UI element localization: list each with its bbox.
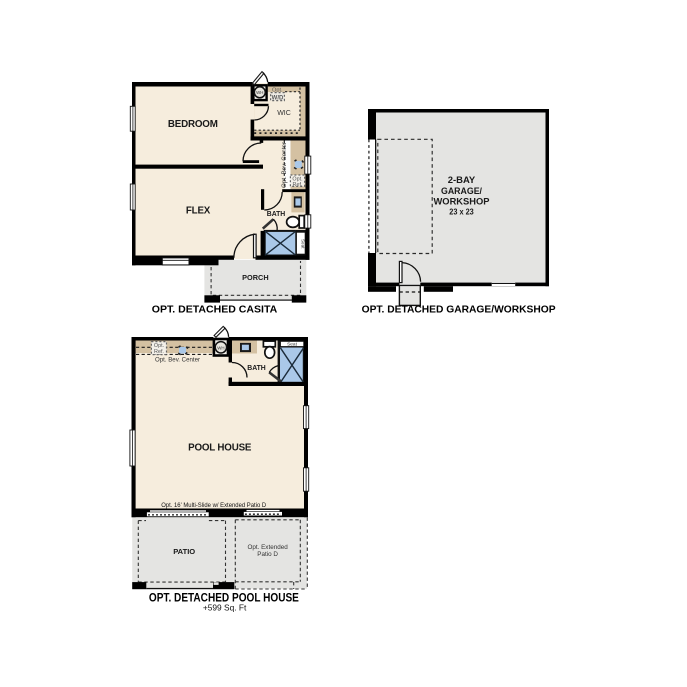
svg-text:Patio D: Patio D — [257, 551, 278, 558]
svg-text:BATH: BATH — [267, 209, 286, 218]
svg-text:Seat: Seat — [301, 239, 306, 249]
svg-text:Ref.: Ref. — [154, 349, 164, 355]
svg-text:23 x 23: 23 x 23 — [449, 206, 474, 216]
svg-text:BEDROOM: BEDROOM — [168, 119, 218, 130]
svg-text:FLEX: FLEX — [186, 206, 211, 217]
svg-text:Opt. Bev. Center: Opt. Bev. Center — [282, 142, 288, 188]
svg-text:2-BAY: 2-BAY — [448, 174, 476, 185]
svg-text:Seat: Seat — [287, 342, 298, 348]
svg-text:W/D: W/D — [272, 95, 284, 101]
svg-text:PORCH: PORCH — [242, 273, 269, 282]
svg-text:WIC: WIC — [277, 110, 291, 117]
svg-text:Opt. Bev. Center: Opt. Bev. Center — [155, 357, 201, 364]
svg-text:BATH: BATH — [247, 363, 266, 372]
svg-text:OPT. DETACHED GARAGE/WORKSHOP: OPT. DETACHED GARAGE/WORKSHOP — [362, 305, 556, 316]
svg-text:Ref.: Ref. — [293, 182, 303, 188]
svg-text:Opt. Extended: Opt. Extended — [247, 544, 288, 551]
svg-text:WH: WH — [217, 345, 224, 350]
svg-text:POOL HOUSE: POOL HOUSE — [188, 443, 252, 454]
svg-text:Opt.: Opt. — [272, 87, 283, 93]
svg-text:+599 Sq. Ft: +599 Sq. Ft — [203, 602, 247, 612]
svg-text:WORKSHOP: WORKSHOP — [434, 196, 490, 207]
svg-text:PATIO: PATIO — [173, 547, 195, 556]
svg-text:Opt. 16' Multi-Slide w/ Extend: Opt. 16' Multi-Slide w/ Extended Patio D — [161, 502, 266, 509]
svg-text:GARAGE/: GARAGE/ — [441, 185, 482, 196]
svg-text:WH: WH — [256, 90, 263, 95]
svg-text:OPT. DETACHED CASITA: OPT. DETACHED CASITA — [152, 305, 278, 316]
